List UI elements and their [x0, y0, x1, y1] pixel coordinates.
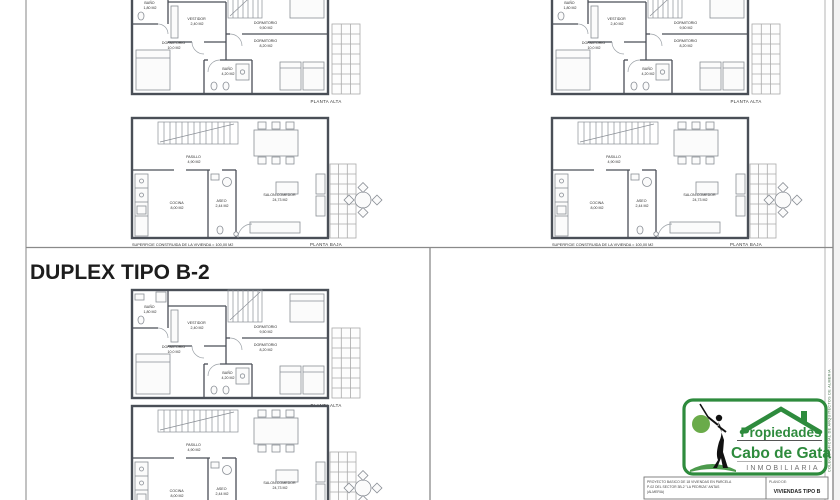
title-block: PROYECTO BASICO DE 18 VIVIENDAS EN PARCE… — [644, 477, 828, 499]
unit-top-right-planta-baja — [552, 118, 802, 247]
floor-plan-canvas: BAÑO 1,80 M2 VESTIDOR 2,40 M2 DORMITORIO… — [0, 0, 840, 500]
unit-top-left-planta-baja — [132, 118, 382, 247]
plano-de-value: VIVIENDAS TIPO B — [774, 489, 821, 495]
logo-line2: Cabo de Gata — [731, 445, 831, 462]
company-logo: Propiedades Cabo de Gata INMOBILIARIA — [684, 400, 831, 474]
architects-college-stamp: COLEGIO OFICIAL DE ARQUITECTOS DE ALMERI… — [828, 369, 832, 472]
unit-top-left-planta-alta — [132, 0, 360, 104]
logo-line1: Propiedades — [740, 425, 821, 440]
unit-top-right-planta-alta — [552, 0, 780, 104]
unit-bottom-left-planta-alta — [132, 290, 360, 408]
section-title: DUPLEX TIPO B-2 — [30, 261, 210, 284]
drawing-sheet: BAÑO 1,80 M2 VESTIDOR 2,40 M2 DORMITORIO… — [0, 0, 840, 500]
unit-bottom-left-planta-baja — [132, 406, 382, 500]
plano-de-label: PLANO DE: — [769, 480, 787, 484]
logo-line3: INMOBILIARIA — [746, 465, 819, 472]
